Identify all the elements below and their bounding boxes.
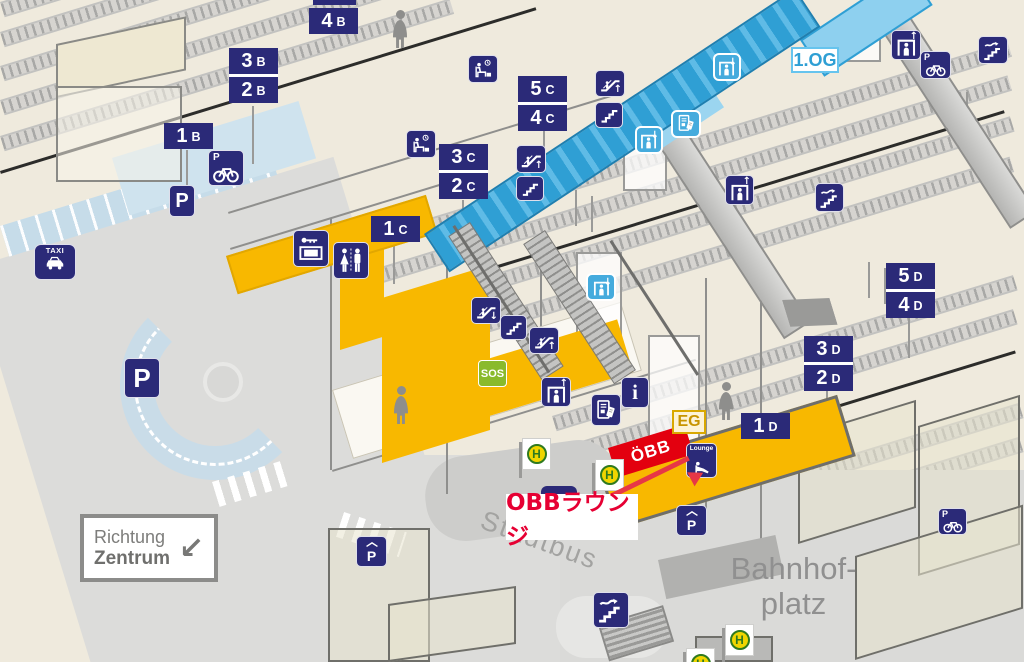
- escalator-up-icon: ↑: [529, 327, 559, 354]
- stairs-exit-icon: [978, 36, 1008, 64]
- bus-stop-sign: H: [725, 624, 754, 656]
- platform-sign-2b: 2B: [229, 74, 278, 103]
- platform-sign-5c-4c: 5C 4C: [518, 76, 567, 131]
- elevator-down-icon: ↓: [635, 126, 663, 154]
- waiting-area-icon: [406, 130, 436, 158]
- sos-sign: SOS: [478, 360, 507, 387]
- direction-text: Richtung Zentrum: [94, 527, 170, 570]
- covered-parking-icon: P: [676, 505, 707, 536]
- catenary-mast: [868, 262, 870, 298]
- bus-stop-pole: [722, 628, 725, 662]
- platform-sign-4b: 4B: [309, 8, 358, 34]
- sign-pole: [252, 106, 254, 164]
- direction-line2: Zentrum: [94, 548, 170, 570]
- stairs-icon: [595, 102, 623, 128]
- bus-stop-sign: H: [686, 648, 715, 662]
- platform-sign-3d-2d: 3D 2D: [804, 336, 853, 391]
- sign-pole: [908, 318, 910, 358]
- stairs-exit-icon: [815, 183, 844, 212]
- floor-1og-tag: 1.OG: [791, 47, 839, 73]
- direction-arrow-icon: ↙: [179, 531, 204, 566]
- sign-pole: [393, 244, 395, 284]
- obb-label: ÖBB: [628, 436, 673, 467]
- platform-sign-5c: 5C: [518, 76, 567, 102]
- stairs-icon: [500, 315, 527, 340]
- bus-stop-h: H: [527, 444, 547, 464]
- ticket-machine-icon: [591, 394, 621, 426]
- platform-sign-1d: 1D: [741, 413, 790, 439]
- bus-stop-h: H: [691, 654, 711, 662]
- sign-pole: [186, 150, 188, 190]
- person-silhouette: [392, 10, 408, 48]
- taxi-icon: TAXI: [34, 244, 76, 280]
- platform-sign-5d: 5D: [886, 263, 935, 289]
- person-silhouette: [718, 382, 734, 420]
- platform-sign-5d-4d: 5D 4D: [886, 263, 935, 318]
- bike-parking-icon: P: [938, 508, 967, 535]
- lounge-caption: Lounge: [687, 445, 716, 452]
- bike-parking-icon: P: [208, 150, 244, 186]
- callout-text: OBBラウンジ: [506, 483, 638, 551]
- platform-sign-1c: 1C: [371, 216, 420, 242]
- square-label: Bahnhof- platz: [706, 552, 881, 621]
- bus-stop-pole: [683, 652, 686, 662]
- floor-eg-tag: EG: [672, 410, 706, 434]
- bus-stop-h: H: [730, 630, 750, 650]
- bus-stop-sign: H: [522, 438, 551, 470]
- person-silhouette: [393, 386, 409, 424]
- luggage-lockers-icon: [293, 230, 329, 267]
- elevator-up-icon: ↑: [725, 175, 754, 205]
- square-label-line1: Bahnhof-: [706, 552, 881, 587]
- platform-sign-3b-2b: 3B 2B: [229, 48, 278, 103]
- roundabout: [203, 362, 243, 402]
- elevator-up-icon: ↑: [541, 377, 571, 407]
- platform-sign-4c: 4C: [518, 102, 567, 131]
- waiting-area-icon: [468, 55, 498, 83]
- bus-stop-h: H: [600, 465, 620, 485]
- elevator-up-icon: ↑: [891, 30, 921, 60]
- platform-sign-3b: 3B: [229, 48, 278, 74]
- stairs-icon: [516, 176, 544, 201]
- ticket-machine-icon: [671, 110, 701, 138]
- station-map: ÖBB EG Lounge 4B 3B 2B 1B 5C 4C 3C 2C 1C…: [0, 0, 1024, 662]
- escalator-down-icon: ↓: [471, 297, 501, 324]
- direction-box: Richtung Zentrum ↙: [80, 514, 218, 582]
- direction-line1: Richtung: [94, 527, 170, 548]
- elevator-down-icon: ↓: [586, 273, 616, 301]
- callout-label: OBBラウンジ: [506, 494, 638, 540]
- catenary-mast: [575, 190, 577, 226]
- elevator-down-icon: ↓: [713, 53, 741, 81]
- platform-sign-3c-2c: 3C 2C: [439, 144, 488, 199]
- wc-icon: [333, 242, 369, 279]
- platform-sign-2d: 2D: [804, 362, 853, 391]
- platform-sign-3c: 3C: [439, 144, 488, 170]
- bike-parking-icon: P: [920, 51, 951, 79]
- platform-sign-partial: [313, 0, 356, 5]
- platform-sign-1b: 1B: [164, 123, 213, 149]
- bus-stop-pole: [519, 442, 522, 478]
- parking-icon: P: [124, 358, 160, 398]
- platform-sign-4d: 4D: [886, 289, 935, 318]
- escalator-up-icon: ↑: [516, 145, 546, 173]
- stairs-exit-icon: [593, 592, 629, 628]
- platform-sign-3d: 3D: [804, 336, 853, 362]
- platform-sign-2c: 2C: [439, 170, 488, 199]
- parking-icon: P: [169, 185, 195, 217]
- escalator-up-icon: ↑: [595, 70, 625, 97]
- covered-parking-icon: P: [356, 536, 387, 567]
- info-icon: i: [621, 377, 649, 408]
- catenary-mast: [591, 196, 593, 232]
- square-label-line2: platz: [706, 587, 881, 622]
